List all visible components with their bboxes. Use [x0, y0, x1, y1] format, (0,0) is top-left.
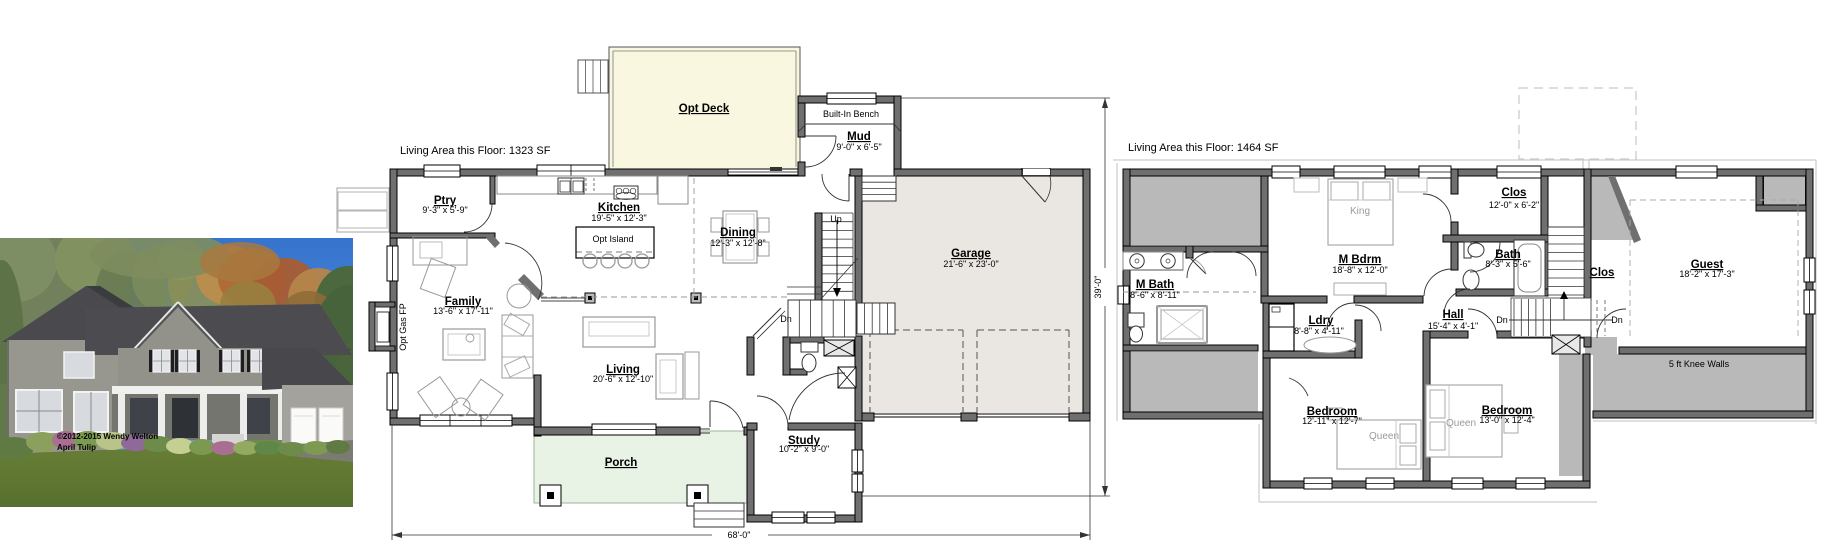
svg-text:Up: Up — [830, 214, 842, 224]
svg-text:9'-0" x 6'-5": 9'-0" x 6'-5" — [836, 142, 881, 152]
svg-text:68'-0": 68'-0" — [728, 530, 751, 540]
svg-text:8'-6" x 8'-11": 8'-6" x 8'-11" — [1130, 290, 1180, 300]
svg-text:©2012-2015 Wendy Welton: ©2012-2015 Wendy Welton — [57, 432, 158, 441]
svg-text:9'-3" x 5'-9": 9'-3" x 5'-9" — [422, 205, 467, 215]
svg-text:Porch: Porch — [605, 457, 638, 469]
svg-text:Queen: Queen — [1446, 418, 1476, 429]
svg-text:8'-3" x 5'-6": 8'-3" x 5'-6" — [1485, 259, 1530, 269]
svg-text:April Tulip: April Tulip — [57, 443, 96, 452]
svg-text:18'-2" x 17'-3": 18'-2" x 17'-3" — [1679, 269, 1734, 279]
svg-text:39'-0": 39'-0" — [1093, 276, 1103, 299]
svg-text:Queen: Queen — [1369, 431, 1399, 442]
svg-text:Opt Island: Opt Island — [592, 234, 633, 244]
svg-text:20'-6" x 12'-10": 20'-6" x 12'-10" — [593, 374, 653, 384]
svg-text:12'-0" x 6'-2": 12'-0" x 6'-2" — [1489, 200, 1539, 210]
svg-text:Clos: Clos — [1502, 187, 1527, 199]
svg-text:15'-4" x 4'-1": 15'-4" x 4'-1" — [1428, 321, 1478, 331]
svg-text:Opt Deck: Opt Deck — [679, 103, 730, 115]
svg-text:King: King — [1350, 206, 1370, 217]
svg-text:12'-11" x 12'-7": 12'-11" x 12'-7" — [1302, 416, 1362, 426]
svg-text:13'-0" x 12'-4": 13'-0" x 12'-4" — [1479, 415, 1534, 425]
svg-text:18'-8" x 12'-0": 18'-8" x 12'-0" — [1332, 265, 1387, 275]
svg-text:Dn: Dn — [780, 314, 792, 324]
svg-text:21'-6" x 23'-0": 21'-6" x 23'-0" — [943, 259, 998, 269]
svg-text:19'-5" x 12'-3": 19'-5" x 12'-3" — [591, 213, 646, 223]
svg-text:Living Area this Floor: 1323 S: Living Area this Floor: 1323 SF — [400, 145, 551, 157]
svg-text:12'-3" x 12'-8": 12'-3" x 12'-8" — [710, 238, 765, 248]
svg-text:Built-In Bench: Built-In Bench — [823, 109, 879, 119]
svg-text:Living Area this Floor: 1464 S: Living Area this Floor: 1464 SF — [1128, 142, 1279, 154]
svg-text:8'-8" x 4'-11": 8'-8" x 4'-11" — [1294, 326, 1344, 336]
svg-text:13'-6" x 17'-11": 13'-6" x 17'-11" — [433, 306, 493, 316]
svg-text:Dn: Dn — [1496, 315, 1508, 325]
svg-text:Hall: Hall — [1442, 309, 1463, 321]
svg-text:Dn: Dn — [1611, 315, 1623, 325]
svg-text:Clos: Clos — [1590, 267, 1615, 279]
svg-text:10'-2" x 9'-0": 10'-2" x 9'-0" — [779, 444, 829, 454]
svg-text:Opt Gas FP: Opt Gas FP — [398, 303, 408, 351]
svg-text:5 ft Knee Walls: 5 ft Knee Walls — [1669, 359, 1730, 369]
